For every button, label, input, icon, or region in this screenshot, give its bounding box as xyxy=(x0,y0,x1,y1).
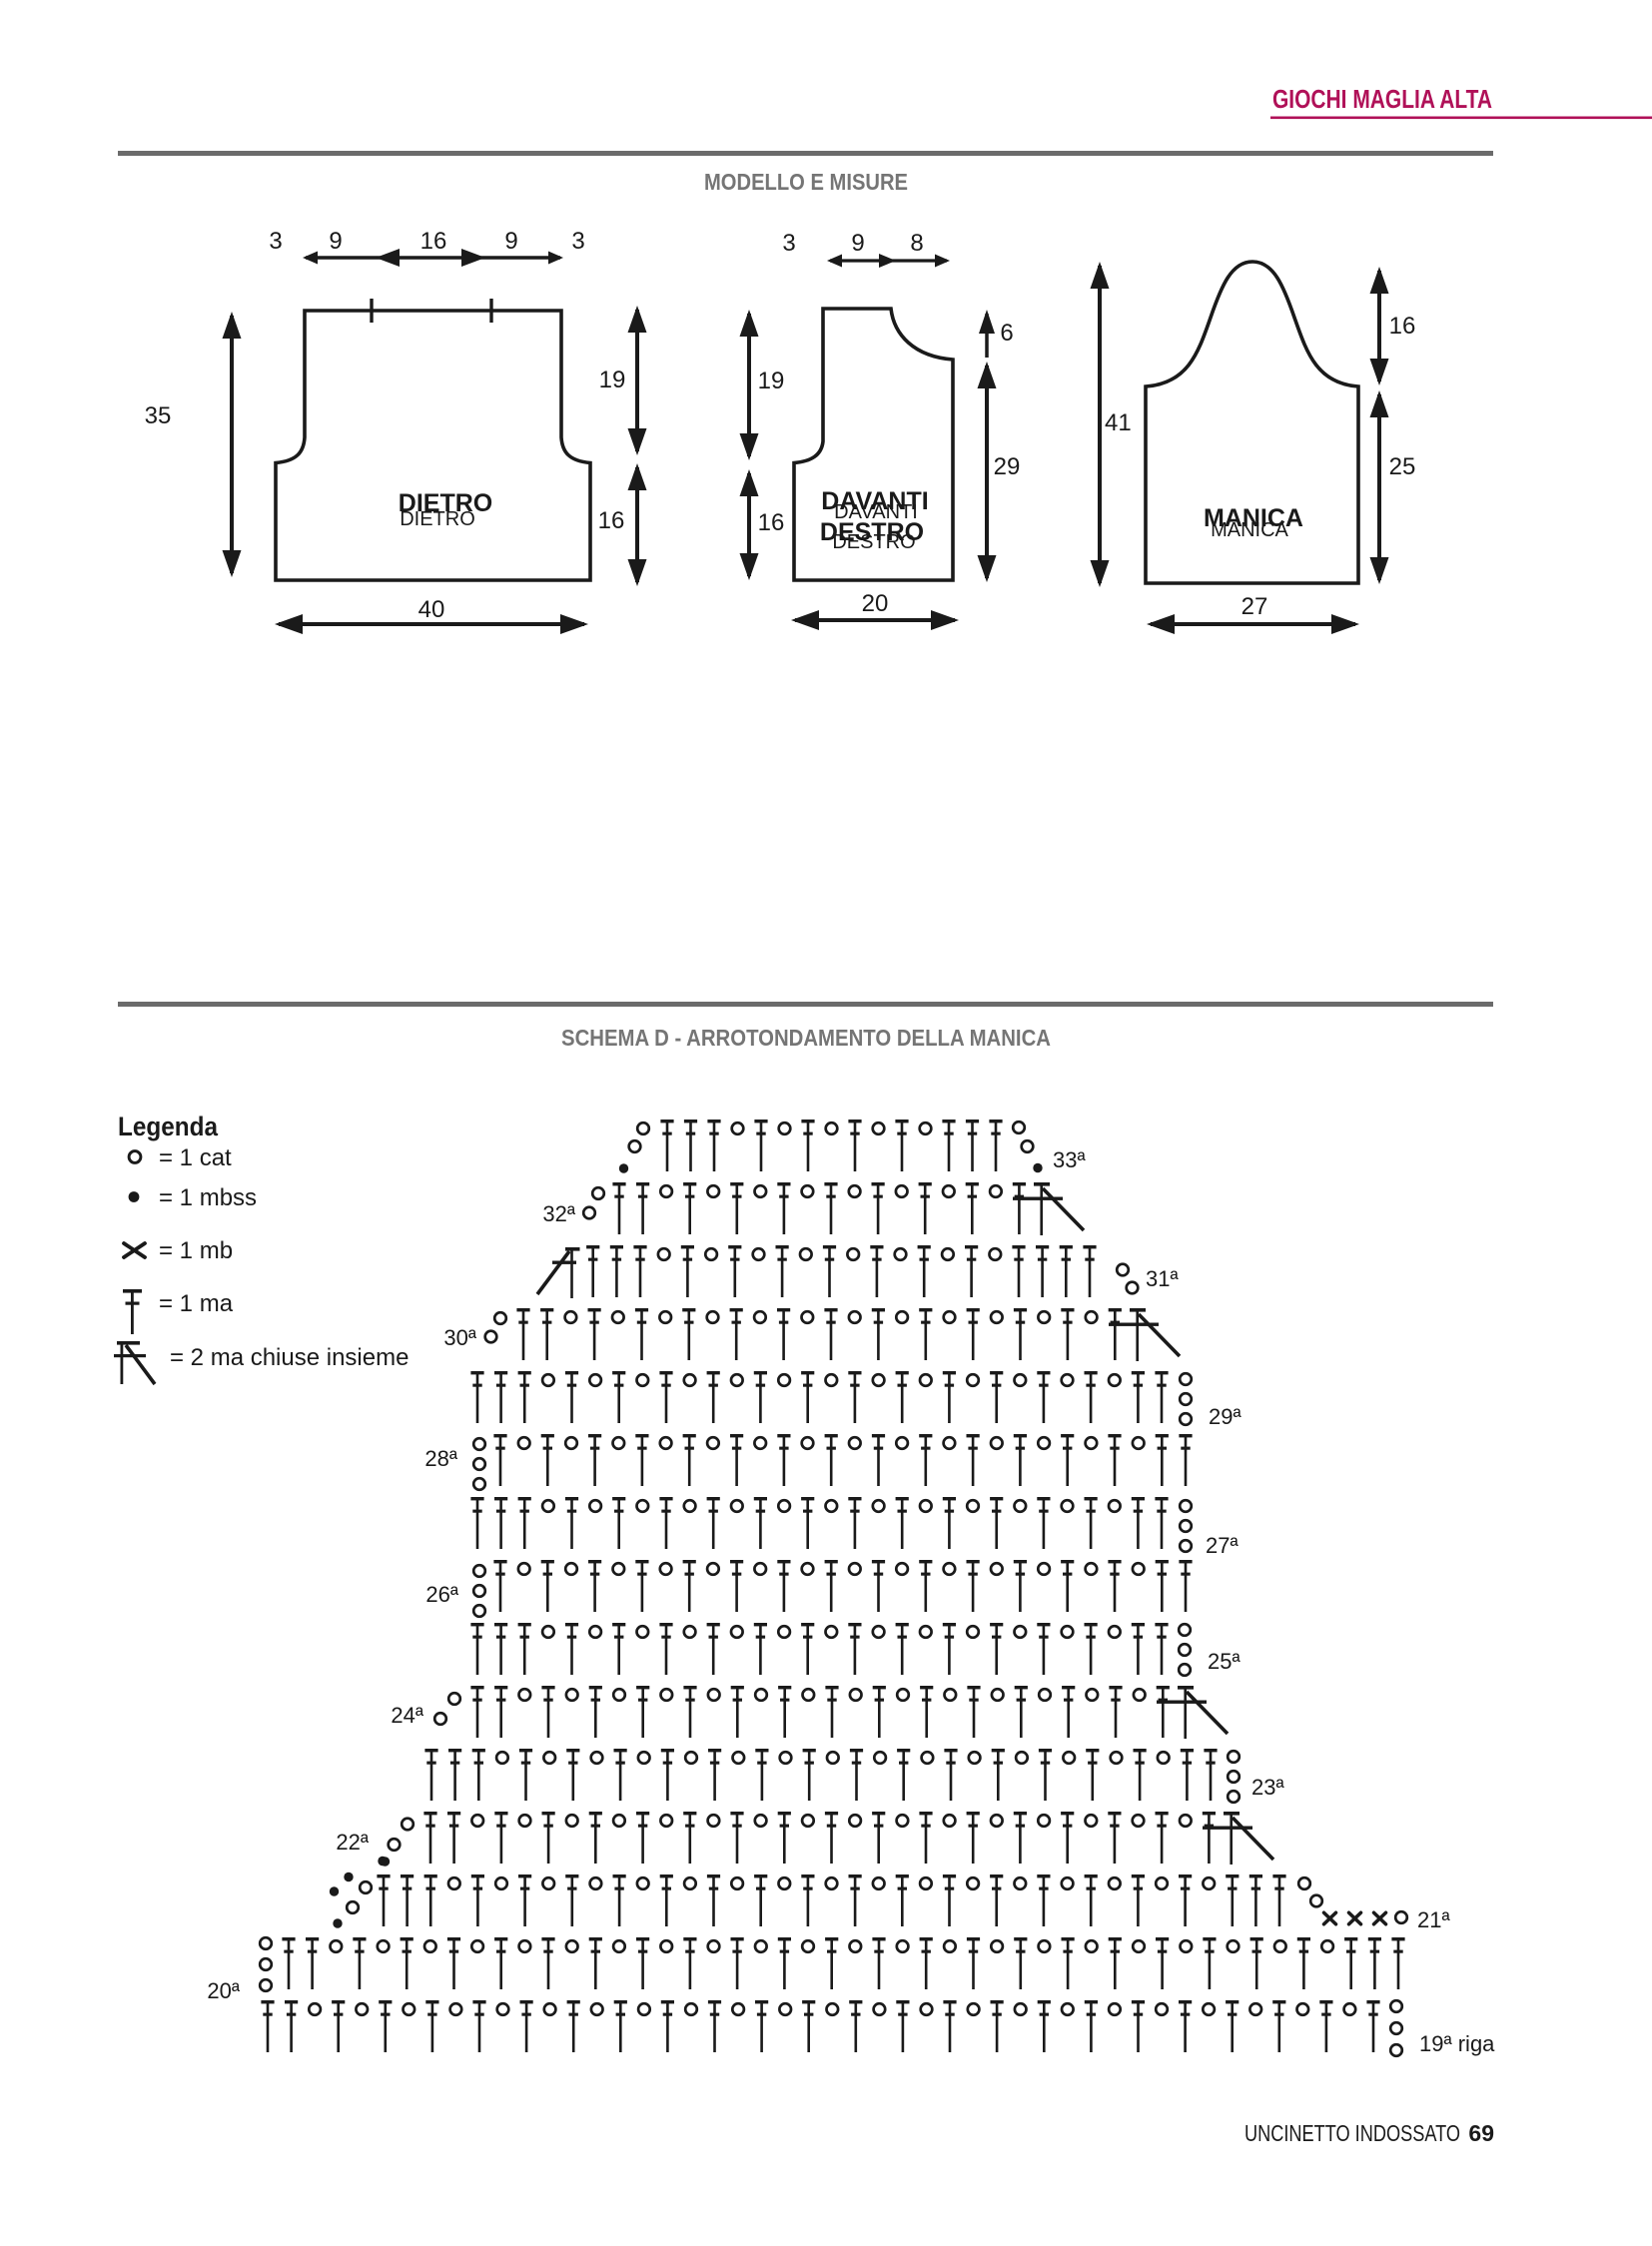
svg-text:33ª: 33ª xyxy=(1053,1147,1086,1172)
svg-text:3: 3 xyxy=(269,228,282,255)
svg-text:25: 25 xyxy=(1389,453,1416,480)
svg-text:32ª: 32ª xyxy=(542,1201,575,1226)
svg-text:16: 16 xyxy=(758,509,785,536)
svg-text:20ª: 20ª xyxy=(207,1978,240,2003)
svg-text:29: 29 xyxy=(994,453,1021,480)
svg-text:16: 16 xyxy=(420,228,447,255)
svg-text:19: 19 xyxy=(758,368,785,394)
svg-text:25ª: 25ª xyxy=(1208,1649,1240,1674)
svg-text:= 1 cat: = 1 cat xyxy=(159,1144,232,1171)
svg-text:DIETRO: DIETRO xyxy=(400,508,475,530)
svg-text:= 1 mb: = 1 mb xyxy=(159,1237,233,1264)
svg-text:20: 20 xyxy=(862,590,889,617)
svg-text:28ª: 28ª xyxy=(424,1446,457,1471)
svg-text:Legenda: Legenda xyxy=(118,1112,219,1141)
svg-text:24ª: 24ª xyxy=(391,1703,423,1728)
svg-text:27ª: 27ª xyxy=(1206,1533,1239,1558)
svg-text:6: 6 xyxy=(1000,320,1013,347)
svg-text:DESTRO: DESTRO xyxy=(832,531,915,553)
svg-text:22ª: 22ª xyxy=(336,1830,369,1855)
svg-text:35: 35 xyxy=(145,402,172,429)
svg-text:21ª: 21ª xyxy=(1417,1907,1450,1932)
svg-text:19: 19 xyxy=(599,367,626,393)
svg-text:27: 27 xyxy=(1241,593,1268,620)
svg-text:GIOCHI MAGLIA ALTA: GIOCHI MAGLIA ALTA xyxy=(1272,84,1492,114)
svg-text:16: 16 xyxy=(598,507,625,534)
svg-text:19ª riga: 19ª riga xyxy=(1419,2031,1495,2056)
svg-text:9: 9 xyxy=(851,230,864,257)
svg-text:= 2 ma chiuse insieme: = 2 ma chiuse insieme xyxy=(170,1344,409,1371)
svg-text:= 1 mbss: = 1 mbss xyxy=(159,1184,257,1211)
svg-text:69: 69 xyxy=(1468,2120,1494,2146)
svg-text:41: 41 xyxy=(1105,409,1132,436)
svg-text:= 1 ma: = 1 ma xyxy=(159,1290,234,1317)
svg-text:SCHEMA D - ARROTONDAMENTO DELL: SCHEMA D - ARROTONDAMENTO DELLA MANICA xyxy=(561,1025,1051,1051)
svg-text:29ª: 29ª xyxy=(1209,1404,1241,1429)
svg-text:31ª: 31ª xyxy=(1146,1266,1179,1291)
svg-text:MODELLO E MISURE: MODELLO E MISURE xyxy=(704,169,908,195)
svg-text:40: 40 xyxy=(418,596,445,623)
svg-text:26ª: 26ª xyxy=(425,1582,458,1607)
svg-text:8: 8 xyxy=(910,230,923,257)
svg-text:UNCINETTO INDOSSATO: UNCINETTO INDOSSATO xyxy=(1244,2120,1460,2146)
svg-text:3: 3 xyxy=(571,228,584,255)
svg-text:23ª: 23ª xyxy=(1251,1775,1284,1800)
svg-text:16: 16 xyxy=(1389,313,1416,340)
svg-text:30ª: 30ª xyxy=(443,1325,476,1350)
svg-text:3: 3 xyxy=(782,230,795,257)
svg-text:9: 9 xyxy=(329,228,342,255)
svg-text:MANICA: MANICA xyxy=(1211,519,1288,541)
svg-text:9: 9 xyxy=(504,228,517,255)
